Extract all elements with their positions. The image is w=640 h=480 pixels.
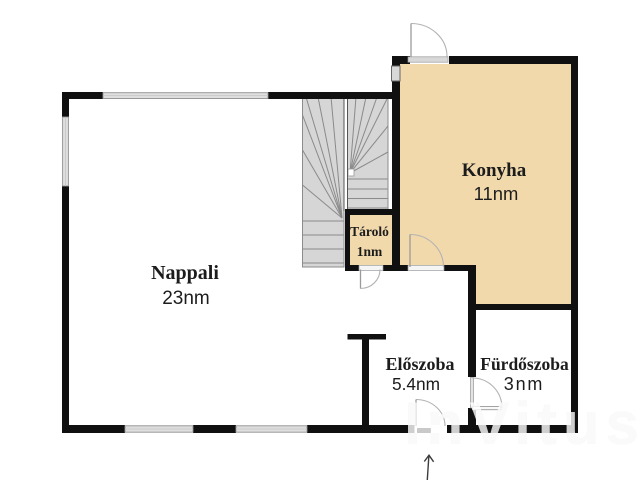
svg-text:Nappali: Nappali: [151, 262, 219, 284]
svg-text:Konyha: Konyha: [462, 160, 527, 181]
svg-text:Tároló: Tároló: [350, 224, 389, 239]
svg-text:InVitus: InVitus: [404, 390, 640, 457]
svg-text:Fürdőszoba: Fürdőszoba: [480, 354, 569, 374]
svg-text:11nm: 11nm: [474, 183, 519, 204]
svg-text:1nm: 1nm: [357, 244, 383, 259]
svg-text:23nm: 23nm: [162, 288, 210, 309]
svg-text:Előszoba: Előszoba: [385, 354, 454, 374]
